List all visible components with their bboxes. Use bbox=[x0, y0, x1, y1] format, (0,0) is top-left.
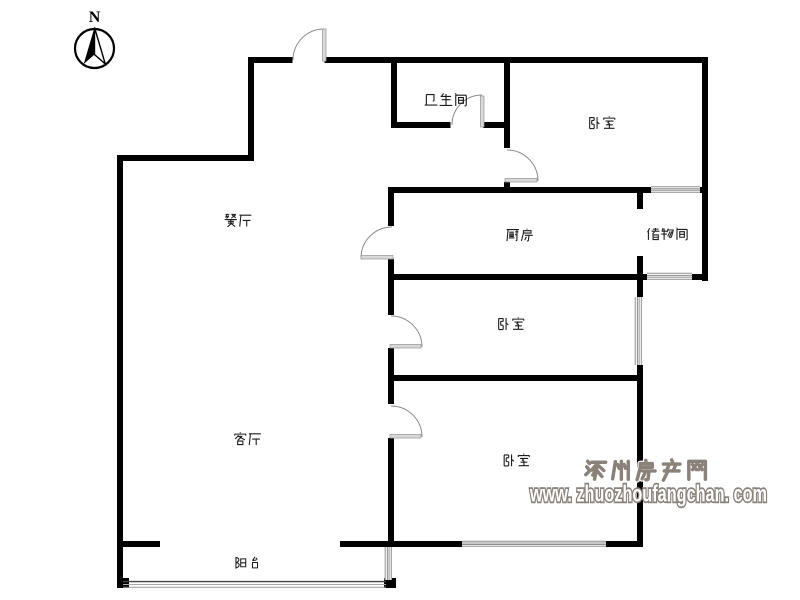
svg-text:N: N bbox=[89, 9, 101, 26]
svg-text:www. zhuozhoufangchan. com: www. zhuozhoufangchan. com bbox=[529, 481, 767, 507]
